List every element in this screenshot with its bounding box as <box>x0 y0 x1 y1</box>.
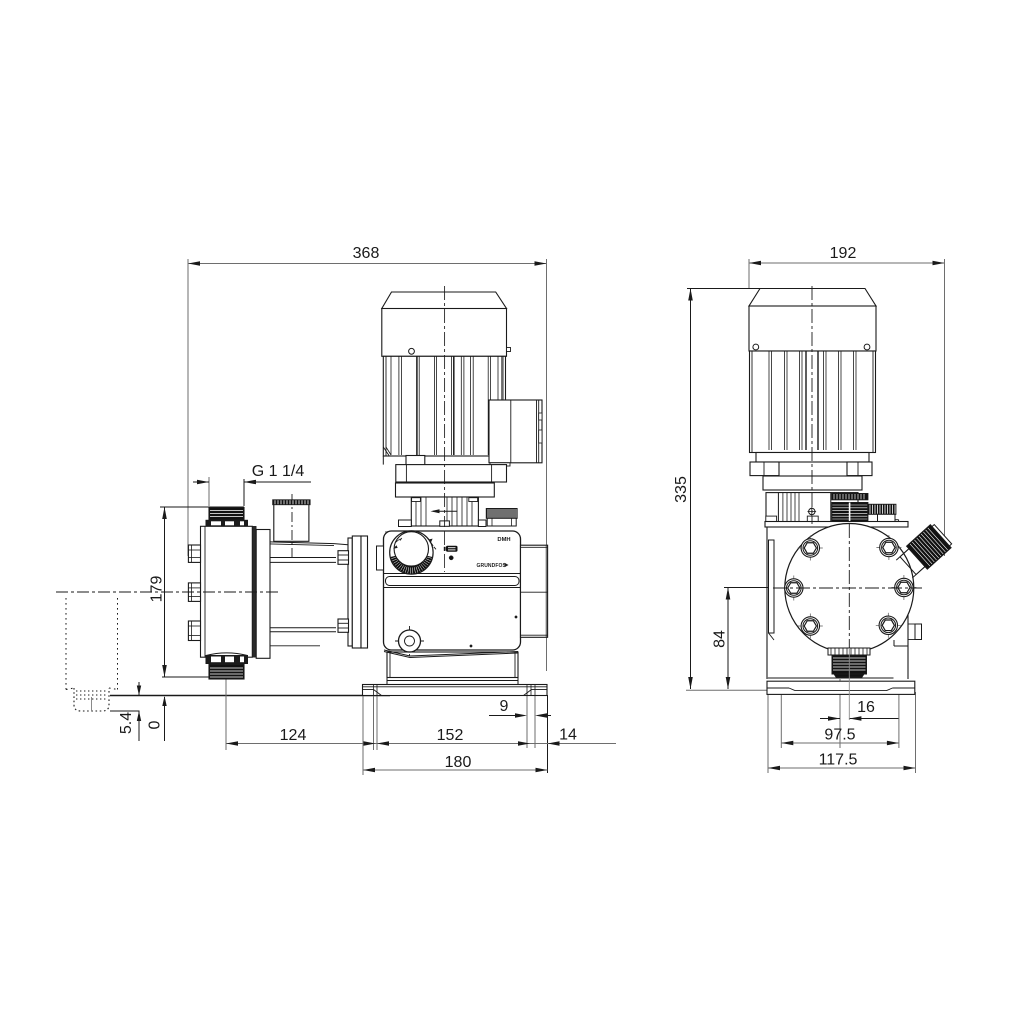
svg-text:179: 179 <box>149 576 166 603</box>
svg-text:DMH: DMH <box>497 537 510 543</box>
svg-text:97.5: 97.5 <box>824 727 855 744</box>
svg-text:9: 9 <box>500 698 509 715</box>
svg-text:GRUNDFOS: GRUNDFOS <box>477 563 507 569</box>
svg-text:5.4: 5.4 <box>118 712 135 734</box>
svg-text:180: 180 <box>445 754 472 771</box>
svg-text:335: 335 <box>673 476 690 503</box>
svg-text:152: 152 <box>437 727 464 744</box>
svg-text:16: 16 <box>857 699 875 716</box>
svg-text:14: 14 <box>559 727 577 744</box>
svg-text:368: 368 <box>353 245 380 262</box>
svg-text:117.5: 117.5 <box>819 752 858 769</box>
svg-text:0: 0 <box>147 720 164 729</box>
svg-text:124: 124 <box>280 727 307 744</box>
svg-text:84: 84 <box>712 630 729 648</box>
svg-text:192: 192 <box>830 245 857 262</box>
svg-text:G 1 1/4: G 1 1/4 <box>252 463 305 480</box>
